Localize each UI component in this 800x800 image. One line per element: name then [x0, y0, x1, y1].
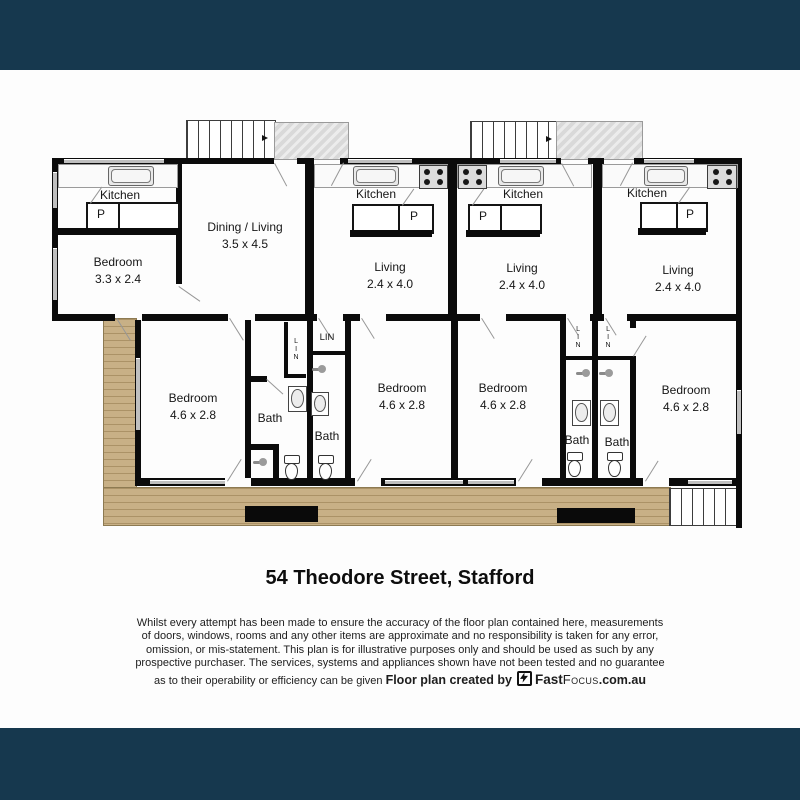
- disclaimer-line-2: of doors, windows, rooms and any other i…: [120, 630, 680, 643]
- wall: [345, 320, 351, 484]
- room-label-bedroom-u1: Bedroom: [94, 255, 143, 271]
- window: [500, 159, 556, 163]
- room-label-bedroom-1: Bedroom: [169, 391, 218, 407]
- sink-icon: [644, 166, 688, 186]
- room-label-pantry-4: P: [686, 207, 694, 223]
- window: [688, 480, 732, 484]
- room-dims-dining-living: 3.5 x 4.5: [222, 237, 268, 253]
- stairs-arrow-icon: [262, 135, 268, 141]
- toilet-icon: [606, 452, 624, 478]
- floor-plan-sheet: Kitchen P Bedroom 3.3 x 2.4 Dining / Liv…: [0, 0, 800, 800]
- sink-icon: [353, 166, 399, 186]
- room-label-kitchen-1: Kitchen: [100, 188, 140, 204]
- disclaimer-line-5: as to their operability or efficiency ca…: [120, 671, 680, 688]
- tap-icon: [253, 461, 264, 464]
- wall: [386, 314, 480, 321]
- window: [64, 159, 164, 163]
- room-label-bath-3: Bath: [565, 433, 590, 449]
- window: [644, 159, 694, 163]
- room-dims-bedroom-2: 4.6 x 2.8: [379, 398, 425, 414]
- room-dims-bedroom-1: 4.6 x 2.8: [170, 408, 216, 424]
- room-dims-living-2: 2.4 x 4.0: [367, 277, 413, 293]
- brand-focus: Focus: [563, 672, 599, 687]
- wall: [566, 356, 592, 360]
- credit-label: Floor plan created by: [386, 673, 512, 687]
- tap-icon: [312, 368, 323, 371]
- deck-mat: [557, 508, 635, 523]
- fastfocus-logo-icon: [517, 671, 532, 686]
- door-leaf: [274, 163, 287, 186]
- wall: [630, 320, 636, 328]
- window: [348, 159, 412, 163]
- wall: [245, 376, 267, 382]
- stairs-rear: [669, 488, 739, 526]
- toilet-icon: [283, 455, 301, 481]
- window: [136, 358, 140, 430]
- floor-plan: Kitchen P Bedroom 3.3 x 2.4 Dining / Liv…: [0, 0, 800, 560]
- basin-icon: [600, 400, 619, 426]
- window: [737, 390, 741, 434]
- bottom-banner: [0, 728, 800, 800]
- room-dims-bedroom-4: 4.6 x 2.8: [663, 400, 709, 416]
- room-label-pantry-2: P: [410, 209, 418, 225]
- wall: [86, 228, 180, 235]
- wall: [736, 158, 742, 528]
- sink-icon: [498, 166, 544, 186]
- door-leaf: [481, 318, 495, 339]
- sink-icon: [108, 166, 154, 186]
- porch-right: [556, 121, 643, 160]
- basin-icon: [288, 386, 307, 412]
- window: [53, 248, 57, 300]
- wall: [284, 374, 306, 378]
- wall: [448, 158, 457, 321]
- room-label-pantry-1: P: [97, 207, 105, 223]
- stove-icon: [458, 165, 487, 189]
- room-label-pantry-3: P: [479, 209, 487, 225]
- room-label-lin-1: LIN: [291, 338, 300, 362]
- room-dims-living-4: 2.4 x 4.0: [655, 280, 701, 296]
- wall: [52, 314, 115, 321]
- room-dims-bedroom-u1: 3.3 x 2.4: [95, 272, 141, 288]
- stove-icon: [707, 165, 737, 189]
- door-leaf: [361, 318, 375, 339]
- brand-fast: Fast: [535, 672, 563, 687]
- room-label-living-4: Living: [662, 263, 693, 279]
- disclaimer-line-4: prospective purchaser. The services, sys…: [120, 657, 680, 670]
- brand-domain: .com.au: [599, 673, 646, 687]
- wall: [176, 228, 182, 284]
- disclaimer-line-1: Whilst every attempt has been made to en…: [120, 617, 680, 630]
- room-label-lin-2: LIN: [320, 332, 335, 344]
- disclaimer-line-3: omission, or mis-statement. This plan is…: [120, 644, 680, 657]
- deck-mat: [245, 506, 318, 522]
- room-label-kitchen-2: Kitchen: [356, 187, 396, 203]
- wall: [627, 314, 742, 321]
- stairs-top-right: [470, 121, 558, 160]
- room-label-lin-3: LIN: [573, 326, 582, 350]
- window: [150, 480, 225, 484]
- basin-icon: [572, 400, 591, 426]
- toilet-icon: [566, 452, 584, 478]
- wall: [592, 320, 598, 484]
- wall: [506, 314, 566, 321]
- door-leaf: [633, 336, 647, 357]
- room-label-lin-4: LIN: [603, 326, 612, 350]
- wall: [284, 322, 288, 378]
- window: [468, 480, 514, 484]
- disclaimer: Whilst every attempt has been made to en…: [120, 617, 680, 688]
- room-dims-living-3: 2.4 x 4.0: [499, 278, 545, 294]
- wall: [451, 320, 458, 484]
- basin-icon: [311, 392, 329, 416]
- door-leaf: [266, 379, 283, 394]
- disclaimer-tail: as to their operability or efficiency ca…: [154, 675, 382, 687]
- wall: [350, 230, 432, 237]
- door-leaf: [229, 318, 244, 341]
- stove-icon: [419, 165, 448, 189]
- wall: [245, 320, 251, 484]
- room-label-living-3: Living: [506, 261, 537, 277]
- room-label-kitchen-3: Kitchen: [503, 187, 543, 203]
- room-label-bedroom-2: Bedroom: [378, 381, 427, 397]
- tap-icon: [576, 372, 587, 375]
- wall: [593, 158, 602, 321]
- tap-icon: [599, 372, 610, 375]
- room-label-bath-2: Bath: [315, 429, 340, 445]
- wall: [305, 158, 314, 321]
- window: [385, 480, 463, 484]
- wall: [598, 356, 630, 360]
- stairs-arrow-icon: [546, 136, 552, 142]
- toilet-icon: [317, 455, 335, 481]
- room-label-bedroom-4: Bedroom: [662, 383, 711, 399]
- room-label-kitchen-4: Kitchen: [627, 186, 667, 202]
- door-leaf: [178, 286, 200, 302]
- room-label-bedroom-3: Bedroom: [479, 381, 528, 397]
- room-label-living-2: Living: [374, 260, 405, 276]
- room-label-bath-4: Bath: [605, 435, 630, 451]
- window: [53, 172, 57, 208]
- credit-line: Floor plan created byFastFocus.com.au: [386, 675, 646, 687]
- wall: [638, 228, 706, 235]
- wall: [313, 351, 345, 355]
- porch-left: [274, 122, 349, 160]
- wall: [630, 356, 636, 484]
- room-label-bath-1: Bath: [258, 411, 283, 427]
- wall: [466, 230, 540, 237]
- address-title: 54 Theodore Street, Stafford: [0, 567, 800, 590]
- room-label-dining-living: Dining / Living: [207, 220, 282, 236]
- room-dims-bedroom-3: 4.6 x 2.8: [480, 398, 526, 414]
- wall: [142, 314, 228, 321]
